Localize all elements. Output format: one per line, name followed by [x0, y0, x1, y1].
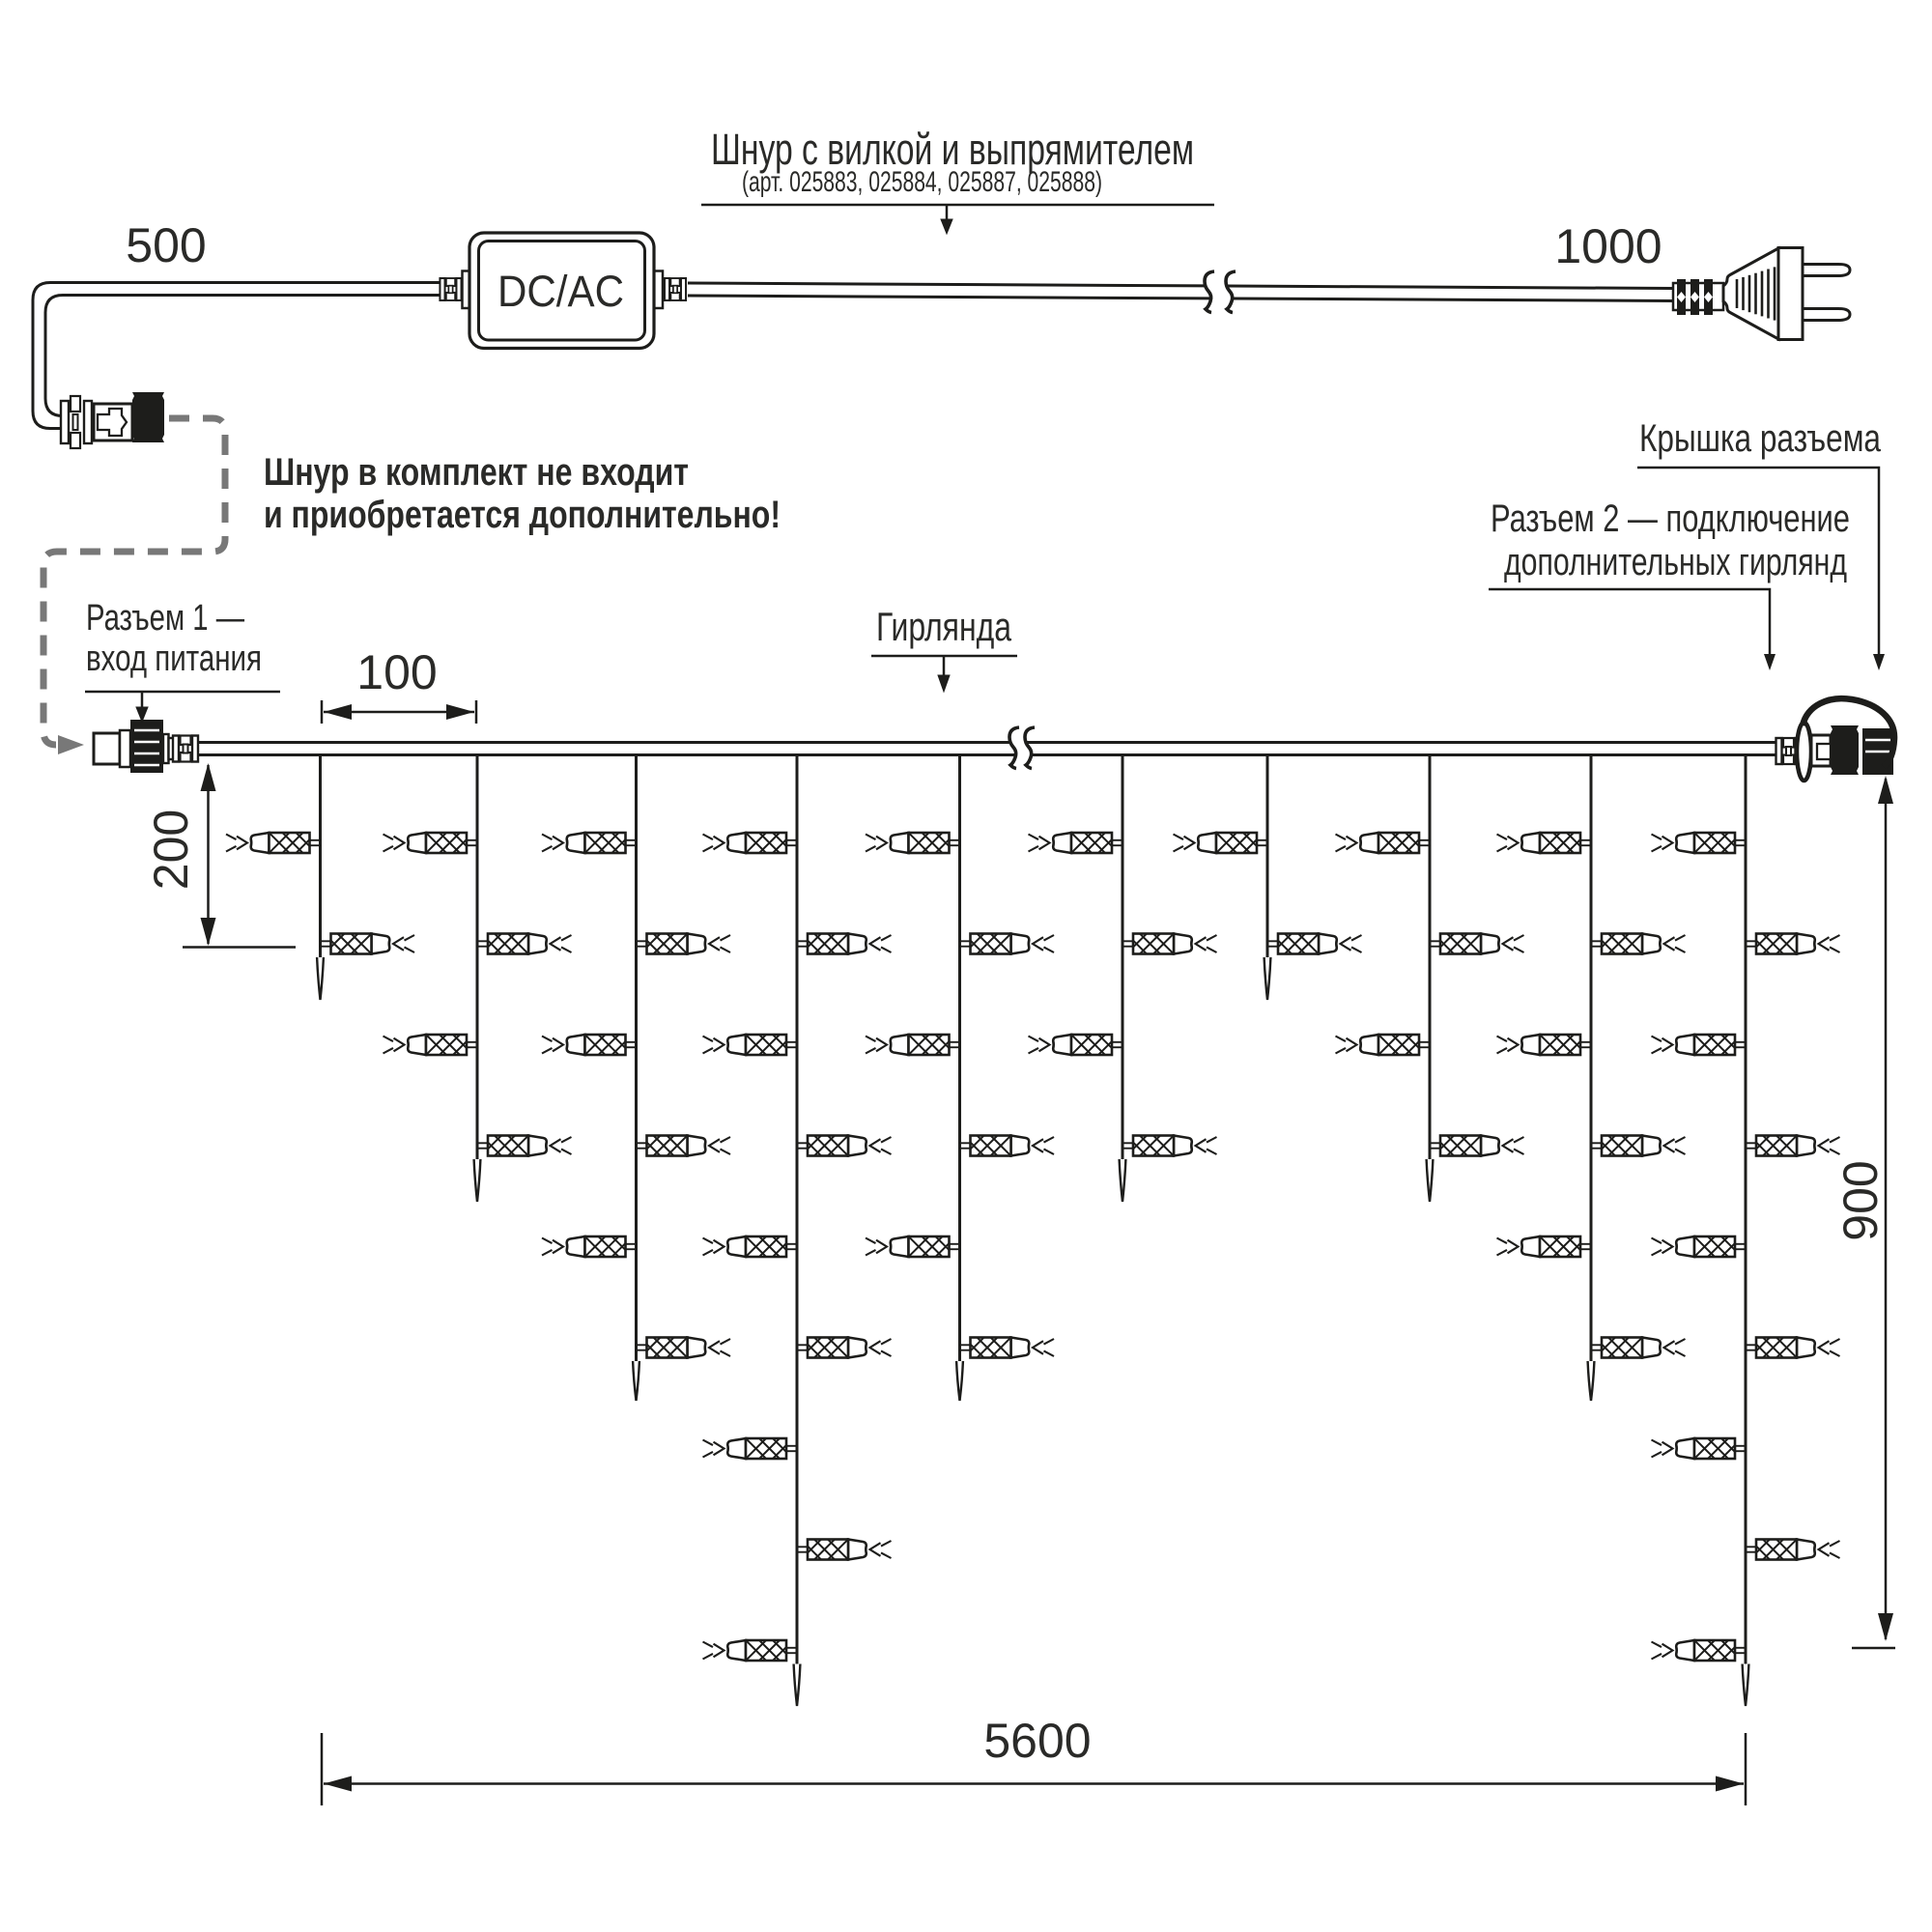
- svg-text:DC/AC: DC/AC: [497, 267, 624, 316]
- svg-text:Разъем 1 —: Разъем 1 —: [86, 598, 244, 639]
- svg-text:900: 900: [1833, 1160, 1888, 1240]
- svg-text:и приобретается дополнительно!: и приобретается дополнительно!: [264, 494, 781, 536]
- svg-text:500: 500: [126, 218, 206, 272]
- svg-text:1000: 1000: [1554, 219, 1662, 273]
- svg-text:Шнур в комплект не входит: Шнур в комплект не входит: [264, 451, 689, 494]
- svg-text:вход питания: вход питания: [86, 639, 262, 679]
- svg-text:200: 200: [144, 810, 198, 890]
- svg-text:дополнительных гирлянд: дополнительных гирлянд: [1504, 541, 1847, 583]
- svg-text:(арт. 025883, 025884, 025887,: (арт. 025883, 025884, 025887, 025888): [742, 166, 1102, 198]
- svg-text:100: 100: [356, 645, 437, 699]
- svg-text:Гирлянда: Гирлянда: [876, 604, 1011, 649]
- svg-text:Разъем 2 — подключение: Разъем 2 — подключение: [1491, 497, 1850, 540]
- svg-text:Крышка разъема: Крышка разъема: [1639, 417, 1882, 460]
- svg-text:5600: 5600: [983, 1714, 1091, 1768]
